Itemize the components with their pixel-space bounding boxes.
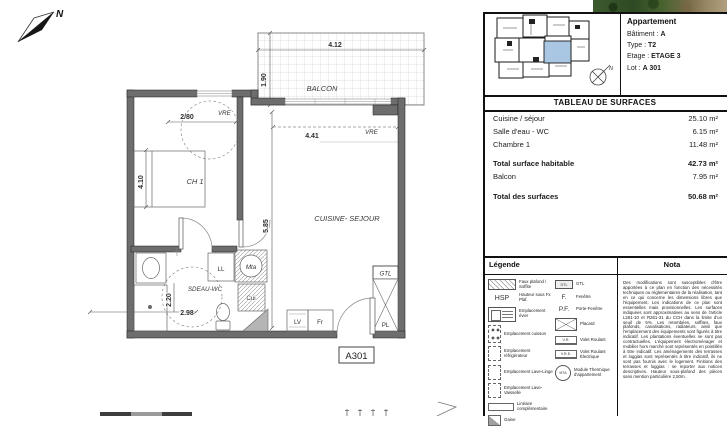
north-arrow-icon: N xyxy=(18,9,64,42)
divider xyxy=(483,274,727,275)
field-label: Lot : xyxy=(627,65,641,72)
legend-item: Linéaire complémentaire xyxy=(488,402,554,412)
fridge-icon xyxy=(488,346,501,361)
legend-label: Emplacement évier xyxy=(519,309,554,319)
row-label: Total surface habitable xyxy=(493,159,574,168)
table-row: Balcon7.95 m² xyxy=(493,172,718,184)
highlighted-unit xyxy=(544,41,571,63)
french-window-icon: P.F. xyxy=(555,306,573,313)
legend-label: Emplacement Lave-Linge xyxy=(504,370,554,375)
legend-item: Emplacement évier xyxy=(488,307,554,322)
field-value: T2 xyxy=(648,42,656,49)
legend-nota-divider xyxy=(617,256,618,416)
apartment-field-lot: Lot : A 301 xyxy=(627,65,723,72)
legend-column-left: Faux plafond / Soffite HSPHauteur sous F… xyxy=(488,279,554,426)
field-value: ETAGE 3 xyxy=(651,53,680,60)
window-icon: F. xyxy=(555,294,573,301)
header-divider xyxy=(620,12,621,95)
aerial-photo xyxy=(593,0,727,12)
room-label-sdeau: SDEAU-WC xyxy=(188,286,223,293)
legend-item: P.F.Porte-Fenêtre xyxy=(555,306,616,313)
key-plan-compass-icon xyxy=(590,65,610,85)
legend-label: Volet Roulant xyxy=(580,338,616,343)
gtl-label: GTL xyxy=(379,271,392,278)
apartment-info: Appartement Bâtiment : A Type : T2 Etage… xyxy=(627,17,723,76)
dim-sdb-width: 2.98 xyxy=(180,310,194,317)
legend-label: Emplacement Lave-Vaisselle xyxy=(504,386,554,396)
field-label: Type : xyxy=(627,42,646,49)
hsp-icon: HSP xyxy=(488,295,516,302)
row-value: 50.68 m² xyxy=(688,192,718,201)
table-row: Cuisine / séjour25.10 m² xyxy=(493,114,718,126)
row-label: Cuisine / séjour xyxy=(493,114,545,123)
dim-ch1-depth: 4.10 xyxy=(138,175,145,189)
apartment-field-type: Type : T2 xyxy=(627,42,723,49)
room-label-balcony: BALCON xyxy=(307,84,338,93)
legend-item: Emplacement réfrigérateur xyxy=(488,346,554,361)
vre-label-sejour: VRE xyxy=(365,129,379,136)
roller-shutter-icon: V.R. xyxy=(555,336,577,345)
dim-sejour-depth: 5.85 xyxy=(263,219,270,233)
row-value: 6.15 m² xyxy=(693,127,718,136)
scale-bar xyxy=(100,402,456,416)
legend-label: Emplacement réfrigérateur xyxy=(504,349,554,359)
legend-label: Module Thermique d'appartement xyxy=(574,368,616,378)
doors xyxy=(173,218,375,334)
duct-icon xyxy=(488,415,501,426)
row-value: 11.48 m² xyxy=(689,140,718,149)
legend-item: V.R.E.Volet Roulant Électrique xyxy=(555,350,616,360)
mta-icon: MTA xyxy=(555,365,571,381)
legend-label: GTL xyxy=(576,282,616,287)
legend-column-right: GTLGTL F.Fenêtre P.F.Porte-Fenêtre Placa… xyxy=(555,280,616,381)
apartment-field-etage: Etage : ETAGE 3 xyxy=(627,53,723,60)
key-plan-north-label: N xyxy=(609,66,613,72)
divider xyxy=(483,256,727,258)
dim-balcony-width: 4.12 xyxy=(328,42,342,49)
legend-label: Hauteur sous Fx Plaf. xyxy=(519,293,554,303)
info-panel: N Appartement Bâtiment : A Type : T2 Eta… xyxy=(483,0,727,416)
room-label-ch1: CH 1 xyxy=(186,177,203,186)
apartment-field-batiment: Bâtiment : A xyxy=(627,31,723,38)
divider xyxy=(483,95,727,97)
mta-label: Mta xyxy=(246,264,257,271)
dim-sdb-depth: 2.20 xyxy=(166,293,173,307)
cooktop-label: Cui xyxy=(246,295,255,302)
legend-label: Emplacement cuisson xyxy=(504,332,554,337)
row-label: Balcon xyxy=(493,172,516,181)
legend-item: Gaine xyxy=(488,415,554,426)
legend-item: Faux plafond / Soffite xyxy=(488,279,554,290)
room-label-sejour: CUISINE- SEJOUR xyxy=(314,214,380,223)
field-label: Etage : xyxy=(627,53,649,60)
legend-item: Emplacement cuisson xyxy=(488,325,554,343)
nota-text: Des modifications sont susceptibles d'êt… xyxy=(623,281,722,412)
legend-label: Linéaire complémentaire xyxy=(517,402,554,412)
legend-item: Placard xyxy=(555,318,616,331)
washer-label: LL xyxy=(218,266,225,273)
vre-label-ch1: VRE xyxy=(218,110,232,117)
table-row: Salle d'eau - WC6.15 m² xyxy=(493,127,718,139)
table-row-total-habitable: Total surface habitable42.73 m² xyxy=(493,159,718,171)
dishwasher-label: LV xyxy=(294,319,302,326)
fridge-label: Fr xyxy=(317,319,323,326)
lot-label: A301 xyxy=(345,351,367,362)
cooktop-icon xyxy=(488,325,501,343)
field-value: A 301 xyxy=(643,65,661,72)
ceiling-hatch-icon xyxy=(488,279,516,290)
table-row-total-surfaces: Total des surfaces50.68 m² xyxy=(493,192,718,204)
plan-sheet: N xyxy=(0,0,727,416)
field-value: A xyxy=(660,31,665,38)
dim-sejour-width: 4.41 xyxy=(305,133,319,140)
closet-icon xyxy=(555,318,577,331)
legend-item: HSPHauteur sous Fx Plaf. xyxy=(488,293,554,303)
sink-icon xyxy=(488,307,516,322)
legend-label: Volet Roulant Électrique xyxy=(580,350,616,360)
row-value: 25.10 m² xyxy=(688,114,718,123)
legend-item: MTAModule Thermique d'appartement xyxy=(555,365,616,381)
gtl-icon: GTL xyxy=(555,280,573,289)
legend-title: Légende xyxy=(489,260,520,269)
row-label: Total des surfaces xyxy=(493,192,558,201)
table-row: Chambre 111.48 m² xyxy=(493,140,718,152)
dim-ch1-window: 2/80 xyxy=(180,114,194,121)
divider xyxy=(483,110,727,112)
apartment-title: Appartement xyxy=(627,17,723,26)
legend-label: Gaine xyxy=(504,418,554,423)
legend-label: Placard xyxy=(580,322,616,327)
field-label: Bâtiment : xyxy=(627,31,659,38)
floor-plan: N xyxy=(0,0,483,416)
washer-icon xyxy=(488,365,501,380)
legend-label: Faux plafond / Soffite xyxy=(519,280,554,290)
legend-item: F.Fenêtre xyxy=(555,294,616,301)
row-label: Salle d'eau - WC xyxy=(493,127,549,136)
row-value: 7.95 m² xyxy=(693,172,718,181)
legend-item: V.R.Volet Roulant xyxy=(555,336,616,345)
linear-icon xyxy=(488,403,514,411)
legend-label: Fenêtre xyxy=(576,295,616,300)
legend-item: Emplacement Lave-Linge xyxy=(488,365,554,380)
dishwasher-icon xyxy=(488,383,501,398)
closet-label: PL xyxy=(382,322,390,329)
electric-roller-shutter-icon: V.R.E. xyxy=(555,350,577,359)
dim-balcony-depth: 1.90 xyxy=(261,73,268,87)
legend-item: GTLGTL xyxy=(555,280,616,289)
lot-tag: A301 xyxy=(339,347,374,363)
north-label: N xyxy=(56,9,64,20)
surface-table-title: TABLEAU DE SURFACES xyxy=(483,98,727,107)
legend-item: Emplacement Lave-Vaisselle xyxy=(488,383,554,398)
legend-label: Porte-Fenêtre xyxy=(576,307,616,312)
row-value: 42.73 m² xyxy=(688,159,718,168)
nota-title: Nota xyxy=(617,260,727,269)
row-label: Chambre 1 xyxy=(493,140,530,149)
key-plan: N xyxy=(483,13,620,95)
